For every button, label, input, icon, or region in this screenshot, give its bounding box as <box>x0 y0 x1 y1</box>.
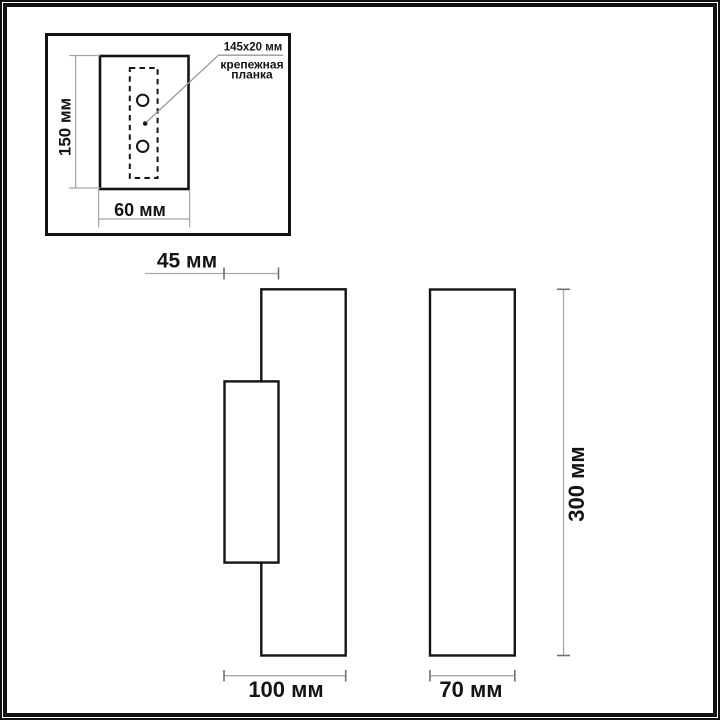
bracket-caption: крепежная планка <box>220 60 283 79</box>
plate-width-dimension-label: 60 мм <box>114 201 166 219</box>
diagram-linework <box>0 0 720 720</box>
front-height-dimension-label: 300 мм <box>566 446 588 521</box>
screw-hole-bottom <box>137 141 148 152</box>
bracket-size-label: 145x20 мм <box>224 42 283 54</box>
side-view-wall-plate-outline <box>225 381 279 562</box>
front-width-dimension-label: 70 мм <box>439 679 502 701</box>
front-view-body-outline <box>430 290 515 656</box>
side-top-depth-dimension-label: 45 мм <box>157 250 217 271</box>
lamp-dimension-diagram: 145x20 мм крепежная планка 150 мм 60 мм … <box>0 0 720 720</box>
plate-height-dimension-label: 150 мм <box>57 97 74 155</box>
side-total-depth-dimension-label: 100 мм <box>248 679 323 701</box>
screw-hole-top <box>137 95 148 106</box>
bracket-caption-line2: планка <box>220 70 283 80</box>
